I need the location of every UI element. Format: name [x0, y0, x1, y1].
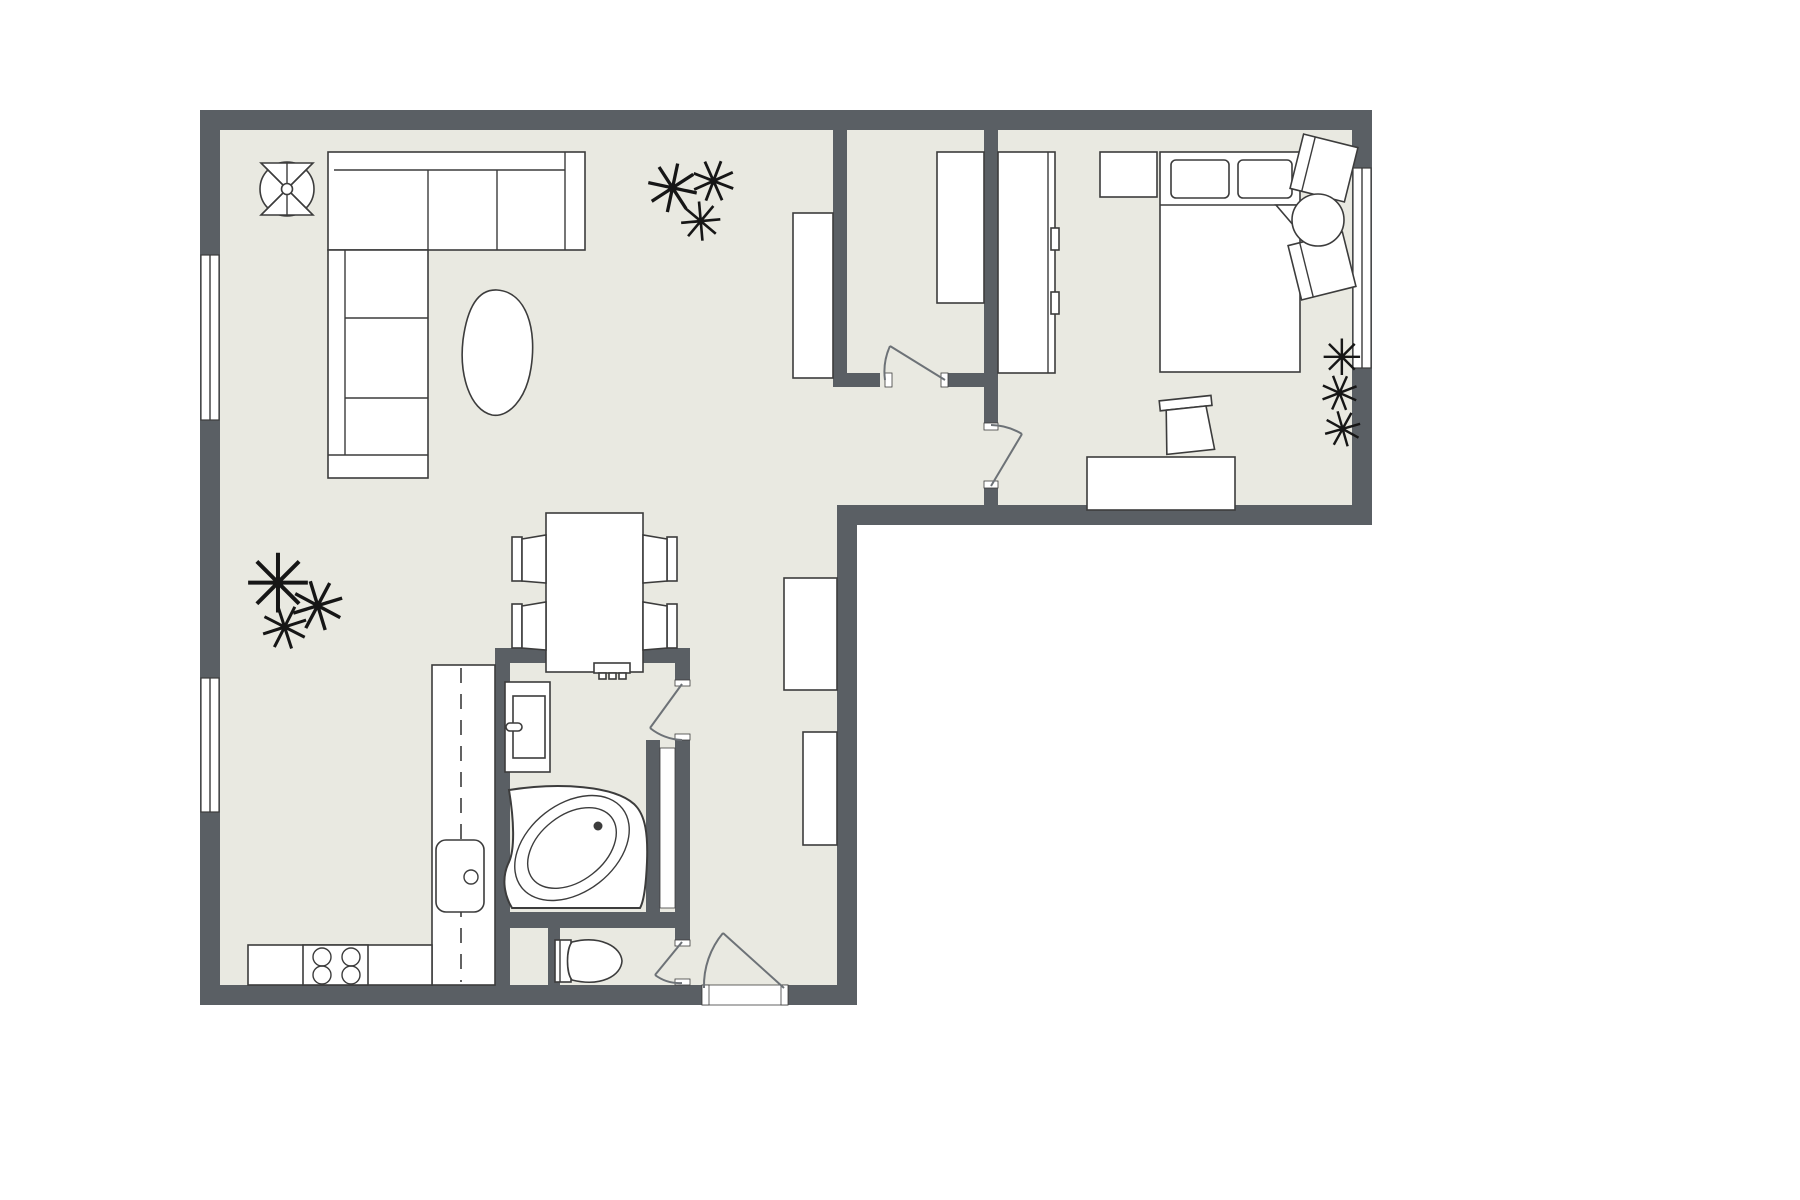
left-window-lower — [201, 678, 219, 812]
wall-bathroom-right-inner — [646, 740, 660, 915]
hall-cabinet-large — [784, 578, 837, 690]
wardrobe — [937, 152, 984, 303]
dining-chair — [512, 535, 546, 583]
wall-living-closet — [833, 130, 847, 387]
wall-bathroom-right-hall — [675, 740, 690, 940]
wall-bedroom-door-post — [984, 488, 998, 525]
round-side-table — [1292, 194, 1344, 246]
sideboard — [793, 213, 833, 378]
desk — [1087, 457, 1235, 510]
wall-closet-bedroom — [984, 130, 998, 423]
wardrobe-sliding — [998, 152, 1059, 373]
counter-run-vertical — [432, 665, 495, 985]
double-bed — [1160, 152, 1300, 372]
coffee-table — [462, 290, 532, 415]
kitchen-sink — [436, 840, 484, 912]
dining-chair — [512, 602, 546, 650]
wall-bathroom-right-stub — [675, 648, 690, 680]
wall-bathroom-bottom — [495, 912, 690, 928]
duct-niche — [660, 748, 675, 908]
cooktop-icon — [303, 945, 368, 985]
wall-top — [200, 110, 1372, 130]
floor-plan-canvas: ✳ ✳ ✳ ✳ ✳ ✳ — [0, 0, 1800, 1200]
floor-plan-svg: ✳ ✳ ✳ ✳ ✳ ✳ — [0, 0, 1800, 1200]
wall-closet-stub-right — [948, 373, 984, 387]
dining-chair — [643, 602, 677, 650]
wall-lower-wing-right — [837, 505, 857, 1005]
wall-closet-stub-left — [833, 373, 880, 387]
left-window-upper — [201, 255, 219, 420]
pillow — [1238, 160, 1292, 198]
hall-cabinet-small — [803, 732, 837, 845]
dining-chair — [643, 535, 677, 583]
wc-room — [555, 940, 622, 982]
toilet-icon — [555, 940, 622, 982]
closet-room — [937, 152, 984, 303]
wall-left — [200, 110, 220, 1005]
washing-machine-cabinet — [505, 682, 550, 772]
nightstand — [1100, 152, 1157, 197]
pillow — [1171, 160, 1229, 198]
dining-table — [546, 513, 643, 672]
towel-radiator-icon — [594, 663, 630, 679]
ceiling-fan-icon — [260, 162, 314, 216]
desk-chair — [1159, 395, 1216, 454]
